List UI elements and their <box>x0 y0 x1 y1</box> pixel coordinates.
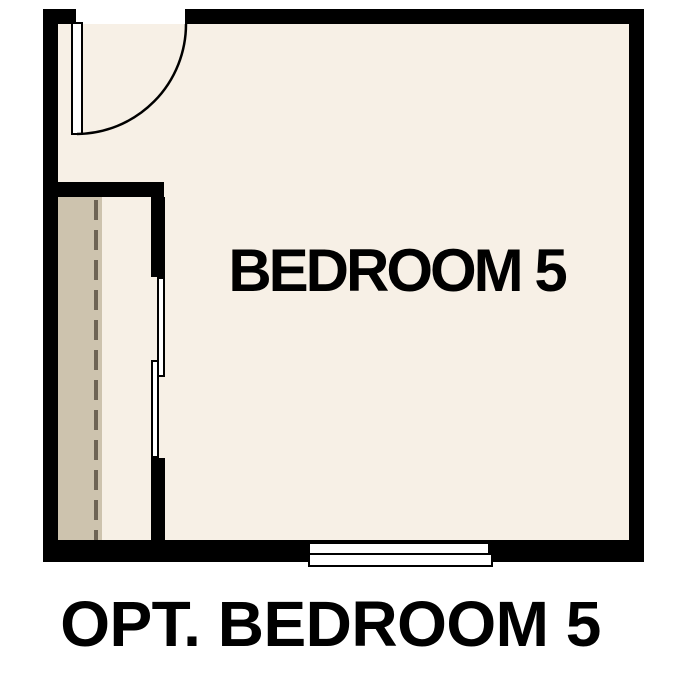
wall-top <box>185 9 644 24</box>
wall-right <box>629 9 644 562</box>
window-sill <box>308 553 493 567</box>
door-leaf <box>71 22 83 135</box>
closet-wall-vertical-upper <box>151 197 165 277</box>
closet-wall-horizontal <box>43 182 164 197</box>
closet-rod-dashed-line <box>94 200 98 540</box>
closet-bypass-door-lower <box>151 360 159 458</box>
plan-caption: OPT. BEDROOM 5 <box>0 592 661 656</box>
wall-left <box>43 9 58 562</box>
closet-wall-vertical-lower <box>151 458 165 540</box>
floor-plan: BEDROOM 5 OPT. BEDROOM 5 <box>0 0 687 687</box>
room-label: BEDROOM 5 <box>164 241 629 301</box>
